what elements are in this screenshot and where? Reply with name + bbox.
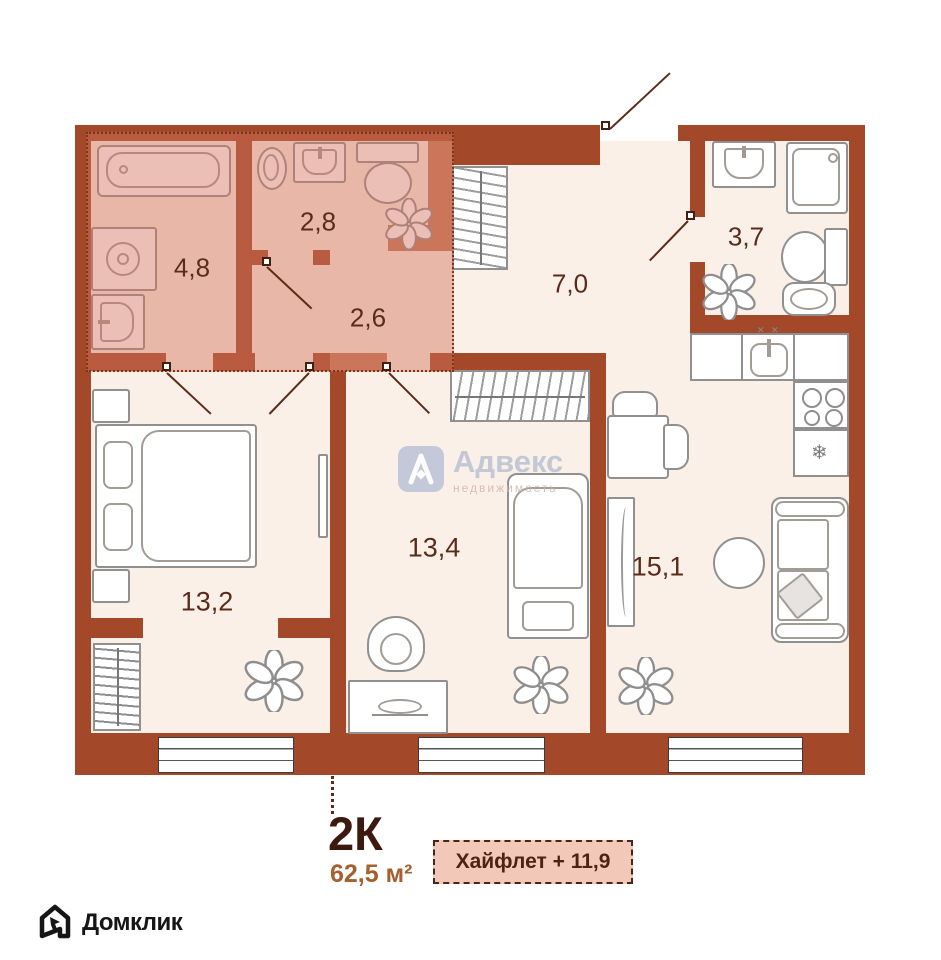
laundry-basket-inner <box>790 288 828 310</box>
watermark-subtitle: недвижимость <box>453 481 563 495</box>
toilet-tank <box>824 228 848 286</box>
plant-icon <box>512 656 570 714</box>
sofa <box>771 497 849 643</box>
wall-segment <box>690 141 705 217</box>
door-hinge <box>162 362 171 371</box>
blanket <box>513 487 583 589</box>
watermark-title: Адвекс <box>453 446 563 479</box>
wall-segment <box>278 618 330 638</box>
watermark: Адвекс недвижимость <box>398 446 563 495</box>
wardrobe <box>452 166 508 270</box>
kitchen-tap-icon <box>767 339 771 357</box>
chair-seat <box>380 633 412 665</box>
double-bed <box>95 424 257 568</box>
plant-icon <box>700 264 758 320</box>
desk-object <box>378 699 422 714</box>
window <box>418 737 545 773</box>
stove-burner-icon <box>825 388 845 408</box>
snowflake-icon: ❄ <box>811 443 828 463</box>
highlight-badge: Хайфлет + 11,9 <box>433 840 633 884</box>
rug <box>713 537 765 589</box>
sink-tap-icon <box>742 146 746 158</box>
chair <box>367 616 425 672</box>
room-label-bathroom-2: 2,8 <box>300 207 336 238</box>
plant-icon <box>243 650 305 712</box>
door-hinge <box>601 121 610 130</box>
room-label-bathroom-master: 4,8 <box>174 253 210 284</box>
window <box>158 737 294 773</box>
sofa-armrest <box>775 623 845 639</box>
toilet-bowl <box>781 231 829 283</box>
door-hinge <box>262 257 271 266</box>
kitchen-counter <box>793 333 849 381</box>
room-label-hallway: 7,0 <box>552 269 588 300</box>
dining-chair <box>663 424 689 470</box>
wall-segment <box>430 353 606 371</box>
wardrobe <box>450 370 590 422</box>
kitchen-counter <box>690 333 743 381</box>
stove-burner-icon <box>825 409 843 427</box>
room-label-bathroom-3: 3,7 <box>728 222 764 253</box>
laundry-basket <box>782 282 836 316</box>
blanket <box>141 430 251 562</box>
radiator <box>93 643 141 731</box>
wall-segment <box>849 125 865 775</box>
room-label-kitchen-living: 15,1 <box>632 552 685 583</box>
stove <box>793 381 849 429</box>
dining-table <box>607 415 669 479</box>
domclick-house-icon <box>36 903 74 943</box>
door-hinge <box>305 362 314 371</box>
shower-drain <box>828 153 838 163</box>
wall-segment <box>590 371 606 733</box>
highlight-zone <box>86 132 454 372</box>
wall-segment <box>452 125 600 165</box>
plant-icon <box>617 657 675 715</box>
pillow <box>103 503 133 551</box>
wall-segment <box>91 618 143 638</box>
door-hinge <box>382 362 391 371</box>
domclick-logo: Домклик <box>36 903 182 943</box>
door-hinge <box>686 211 695 220</box>
tv-screen-line <box>621 507 631 617</box>
sofa-cushion <box>777 519 829 570</box>
nightstand <box>92 389 130 423</box>
shower <box>786 142 848 214</box>
domclick-logo-text: Домклик <box>82 909 182 937</box>
watermark-logo-icon <box>398 446 444 492</box>
desk <box>348 680 448 734</box>
single-bed <box>507 473 589 639</box>
stove-burner-icon <box>802 388 822 408</box>
unit-type-label: 2К <box>328 806 383 861</box>
window <box>668 737 803 773</box>
stove-burner-icon <box>804 410 820 426</box>
watermark-a-glyph <box>398 446 444 492</box>
pillow <box>522 601 574 631</box>
kitchen-sink-cabinet <box>741 333 795 381</box>
room-label-hall-inner: 2,6 <box>350 303 386 334</box>
wall-segment <box>330 371 346 733</box>
floorplan-page: ✕ ✕ ❄ 4,8 2,8 2,6 7,0 3,7 13,2 13,4 15,1 <box>0 0 941 960</box>
pillow <box>103 441 133 489</box>
sink <box>712 141 776 188</box>
wall-mirror <box>318 454 328 538</box>
sofa-armrest <box>775 501 845 517</box>
desk-object-base <box>372 714 428 716</box>
room-label-bedroom: 13,2 <box>181 587 234 618</box>
room-label-room-2: 13,4 <box>408 533 461 564</box>
door-swing-line <box>609 72 670 129</box>
dining-chair <box>612 391 658 417</box>
unit-area-label: 62,5 м² <box>330 860 412 889</box>
wall-segment <box>678 125 865 141</box>
kitchen-tap-marks: ✕ ✕ <box>757 325 781 336</box>
nightstand <box>92 569 130 603</box>
